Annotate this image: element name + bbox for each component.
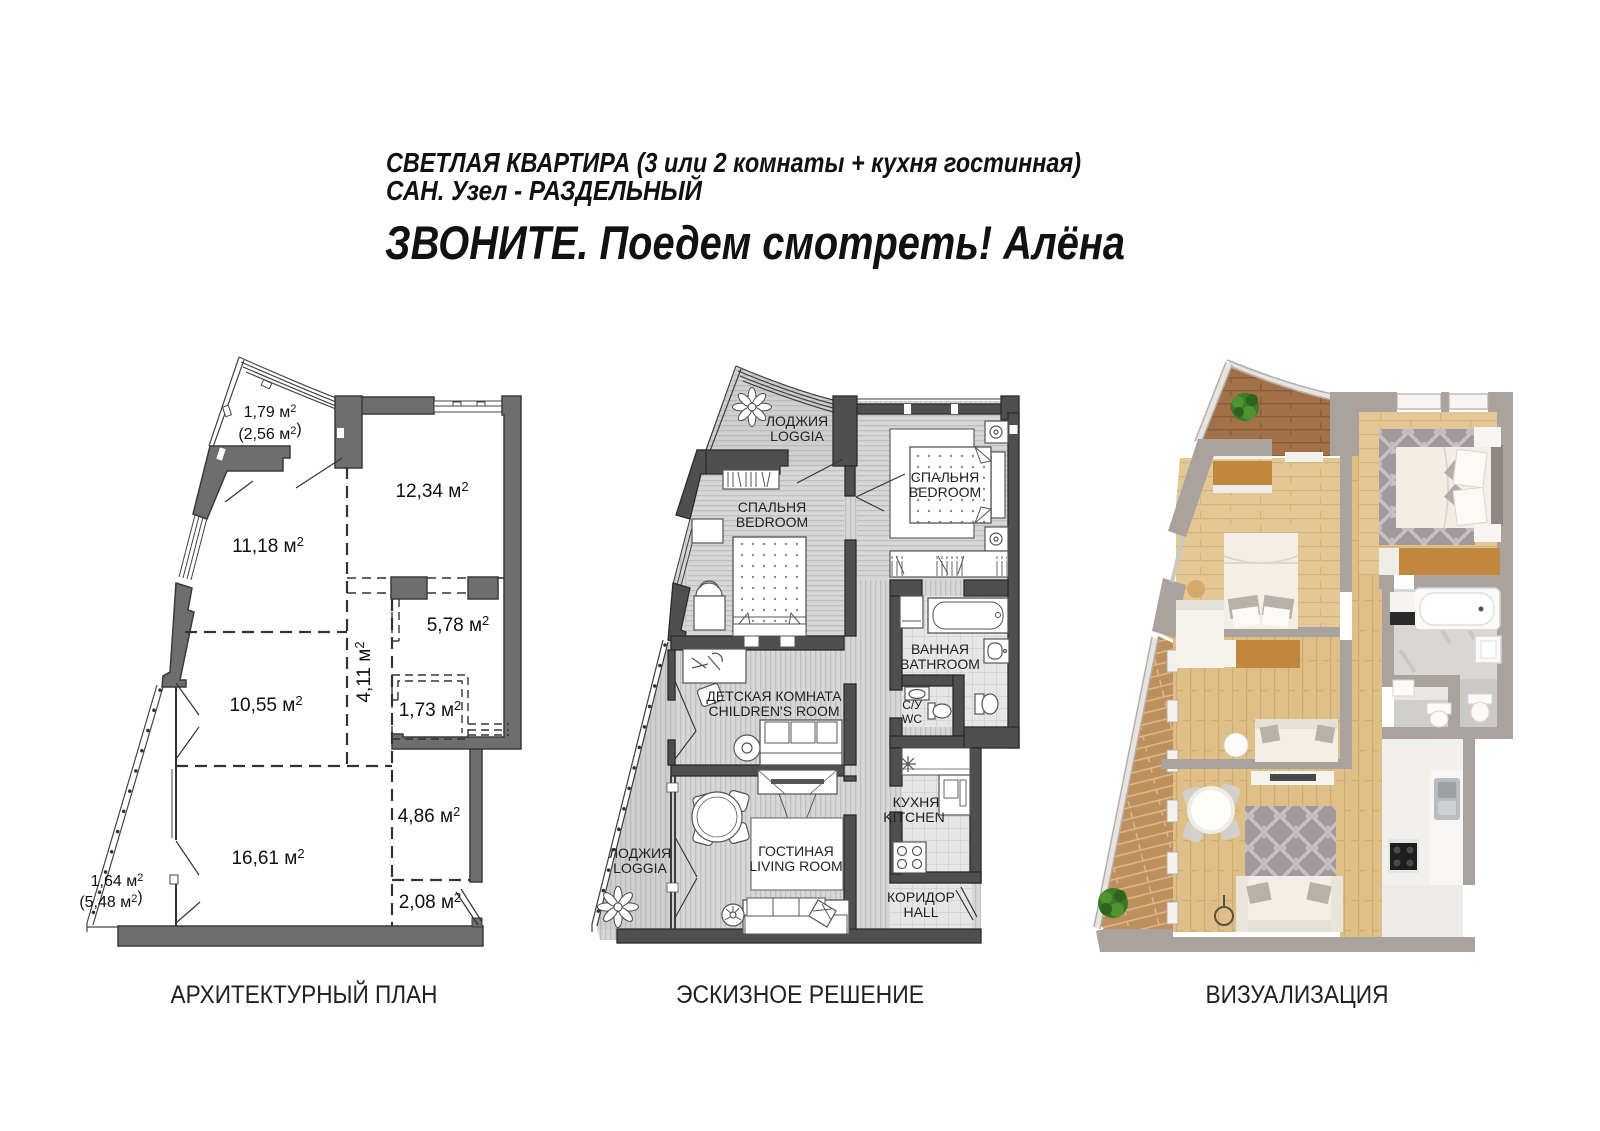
svg-text:1,79 м2: 1,79 м2 (244, 403, 297, 421)
svg-text:12,34 м2: 12,34 м2 (395, 479, 468, 502)
svg-text:ЭСКИЗНОЕ РЕШЕНИЕ: ЭСКИЗНОЕ РЕШЕНИЕ (676, 981, 924, 1009)
svg-text:(5,48 м2): (5,48 м2) (79, 889, 142, 911)
svg-text:1,73 м2: 1,73 м2 (399, 698, 462, 721)
svg-text:4,11 м2: 4,11 м2 (352, 641, 375, 702)
svg-text:WC: WC (902, 712, 922, 726)
svg-text:ГОСТИНАЯ: ГОСТИНАЯ (758, 843, 834, 859)
svg-text:BEDROOM: BEDROOM (736, 514, 808, 530)
svg-text:LOGGIA: LOGGIA (613, 860, 667, 876)
svg-text:4,86 м2: 4,86 м2 (398, 804, 461, 827)
svg-text:СВЕТЛАЯ КВАРТИРА (3 или 2 комн: СВЕТЛАЯ КВАРТИРА (3 или 2 комнаты + кухн… (386, 147, 1081, 178)
svg-text:СПАЛЬНЯ: СПАЛЬНЯ (911, 469, 979, 485)
svg-text:СПАЛЬНЯ: СПАЛЬНЯ (738, 499, 806, 515)
svg-text:(2,56 м2): (2,56 м2) (238, 421, 301, 443)
svg-text:HALL: HALL (903, 904, 938, 920)
svg-text:5,78 м2: 5,78 м2 (427, 613, 490, 636)
svg-text:KITCHEN: KITCHEN (883, 809, 944, 825)
svg-text:С/У: С/У (902, 698, 922, 712)
svg-text:ЛОДЖИЯ: ЛОДЖИЯ (766, 413, 828, 429)
svg-text:САН. Узел - РАЗДЕЛЬНЫЙ: САН. Узел - РАЗДЕЛЬНЫЙ (386, 174, 703, 206)
svg-text:CHILDREN'S ROOM: CHILDREN'S ROOM (708, 703, 839, 719)
svg-text:ЗВОНИТЕ. Поедем смотреть! Алён: ЗВОНИТЕ. Поедем смотреть! Алёна (385, 216, 1125, 269)
svg-text:ВАННАЯ: ВАННАЯ (911, 641, 969, 657)
svg-text:2,08 м2: 2,08 м2 (399, 890, 462, 913)
svg-text:1,64 м2: 1,64 м2 (91, 872, 144, 890)
svg-text:LOGGIA: LOGGIA (770, 428, 824, 444)
svg-text:11,18 м2: 11,18 м2 (232, 534, 304, 557)
svg-text:ЛОДЖИЯ: ЛОДЖИЯ (609, 845, 671, 861)
svg-text:16,61 м2: 16,61 м2 (231, 846, 304, 869)
svg-text:АРХИТЕКТУРНЫЙ ПЛАН: АРХИТЕКТУРНЫЙ ПЛАН (171, 979, 438, 1009)
svg-text:КУХНЯ: КУХНЯ (893, 794, 940, 810)
svg-text:КОРИДОР: КОРИДОР (887, 889, 955, 905)
svg-text:ВИЗУАЛИЗАЦИЯ: ВИЗУАЛИЗАЦИЯ (1206, 981, 1389, 1009)
svg-text:ДЕТСКАЯ КОМНАТА: ДЕТСКАЯ КОМНАТА (706, 688, 842, 704)
svg-text:LIVING ROOM: LIVING ROOM (749, 858, 842, 874)
svg-text:BATHROOM: BATHROOM (900, 656, 980, 672)
svg-text:BEDROOM: BEDROOM (909, 484, 981, 500)
svg-text:10,55 м2: 10,55 м2 (229, 693, 302, 716)
